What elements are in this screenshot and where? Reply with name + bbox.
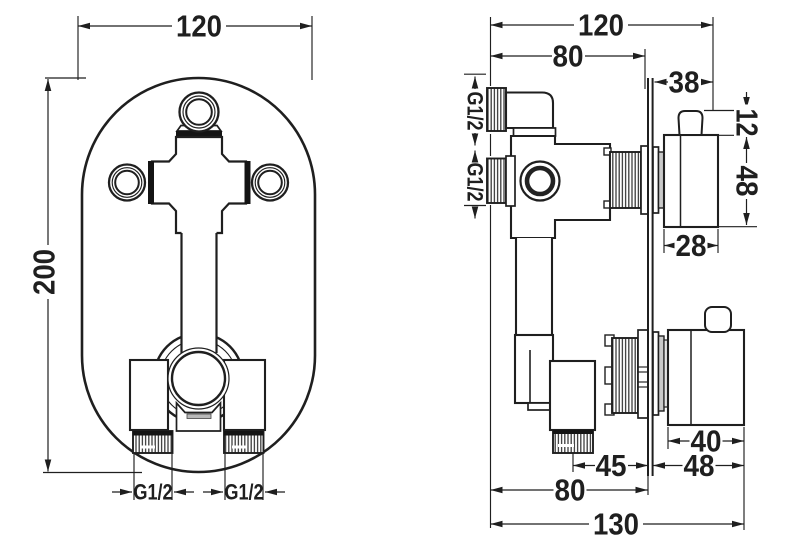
upper-handle (664, 135, 718, 227)
lower-inlet-thread (487, 159, 506, 204)
dim-side-handle-height: 48 (730, 166, 765, 197)
dim-side-inlet-top: G1/2 (463, 92, 488, 131)
dim-side-valve-depth-bottom: 80 (555, 473, 586, 508)
dim-side-cap-height: 12 (730, 109, 765, 137)
thermostat-knob (172, 352, 225, 405)
dim-front-width: 120 (176, 9, 222, 44)
stem-fill (183, 234, 216, 352)
lower-body-step (528, 403, 550, 410)
pipe-fill (517, 238, 551, 336)
dim-front-outlet-left: G1/2 (134, 480, 173, 505)
dim-side-handle-width: 28 (676, 228, 707, 263)
drawing-canvas: 120 200 G1/2 G1/2 (0, 0, 800, 552)
dim-side-valve-depth: 80 (553, 39, 584, 74)
dim-side-total-depth: 130 (593, 507, 639, 542)
dim-front-outlet-right: G1/2 (225, 480, 264, 505)
right-outlet-block (224, 360, 265, 430)
upper-inlet-thread (487, 88, 506, 131)
dim-front-height: 200 (27, 249, 62, 295)
left-port-seal-band (148, 161, 154, 204)
front-outlet-band-left (133, 431, 173, 436)
front-outlet-band-right (224, 431, 264, 436)
front-view (82, 78, 315, 472)
lower-body-block (515, 335, 553, 403)
upper-handle-cap (679, 111, 703, 135)
dim-side-width: 120 (578, 8, 624, 43)
side-dimensions: 120 80 38 12 48 28 G1/2 (463, 8, 765, 542)
upper-wall-thread (610, 152, 641, 208)
upper-collar (514, 128, 556, 136)
lower-handle-flange2 (659, 336, 665, 411)
lower-handle-flange1 (653, 332, 659, 415)
dim-inlet-top-group: G1/2 (463, 92, 488, 131)
upper-wall-nut (641, 146, 648, 214)
lower-wall-nut (638, 330, 648, 418)
dim-handle-height-group: 48 (730, 163, 765, 199)
dim-side-inlet-bottom: G1/2 (463, 163, 488, 202)
dim-side-outlet-to-plate: 45 (596, 448, 627, 483)
lower-handle-cap (705, 307, 731, 332)
outlet-opening-bore (527, 168, 553, 194)
thread-highlight-right (232, 446, 246, 449)
lower-wall-thread (612, 338, 638, 413)
dim-side-lower-handle-depth: 48 (684, 448, 715, 483)
lower-handle (668, 330, 744, 425)
thread-highlight (558, 444, 574, 447)
lower-outlet-block (550, 361, 595, 430)
right-port-seal-band (245, 161, 251, 204)
thread-highlight-left (141, 446, 155, 449)
lower-inlet-flange (506, 156, 515, 206)
dim-cap-height-group: 12 (730, 105, 765, 141)
dim-inlet-bottom-group: G1/2 (463, 163, 488, 202)
left-outlet-block (130, 360, 168, 430)
lower-outlet-band (553, 430, 593, 434)
valve-technical-drawing: 120 200 G1/2 G1/2 (0, 0, 800, 552)
upper-elbow (506, 93, 553, 129)
cradle-clip (187, 414, 211, 419)
dim-front-height-group: 200 (27, 245, 62, 299)
dim-side-handle-offset: 38 (669, 65, 700, 100)
upper-handle-flange1 (653, 147, 659, 213)
